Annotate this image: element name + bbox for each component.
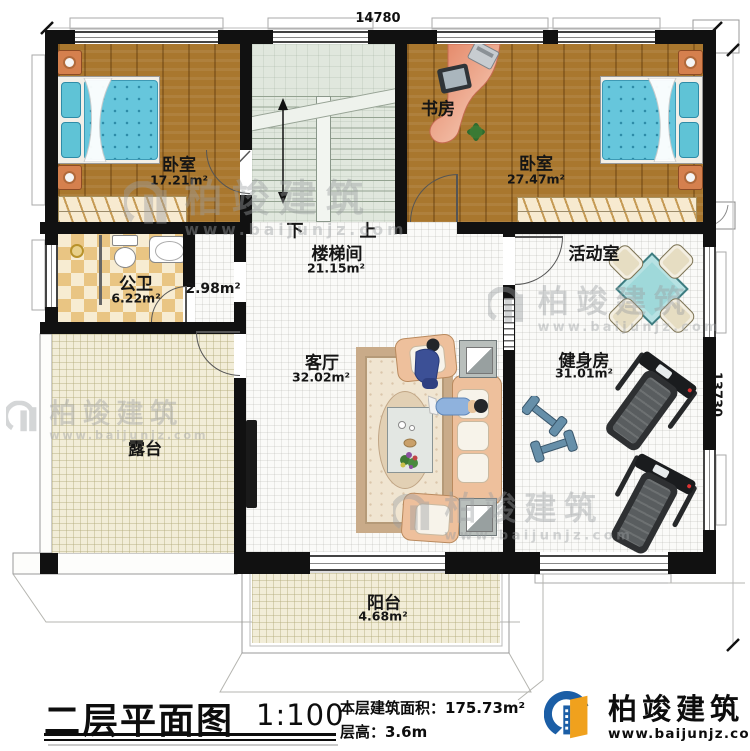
wall-segment — [395, 44, 407, 234]
wall-segment — [234, 552, 310, 574]
floor-height-text: 层高：3.6m — [340, 721, 427, 742]
armchair — [400, 492, 461, 544]
wall-segment — [445, 552, 540, 574]
window — [558, 31, 655, 43]
pillow — [679, 122, 699, 158]
nightstand — [57, 50, 82, 75]
nightstand — [57, 165, 82, 190]
lamp-icon — [684, 56, 697, 69]
room-area-gym: 31.01m² — [555, 366, 613, 381]
window — [540, 555, 668, 571]
wall-segment — [543, 30, 558, 44]
terrace-rail-left — [40, 334, 52, 553]
stairs — [252, 44, 395, 222]
person-seated — [404, 334, 448, 392]
bed-blanket — [82, 78, 116, 162]
sink-icon — [149, 236, 187, 263]
wall-segment — [240, 44, 252, 150]
window — [703, 450, 716, 530]
brand-name: 柏竣建筑 — [608, 694, 750, 726]
window — [273, 31, 368, 43]
wall-segment — [668, 552, 716, 574]
toilet-bowl — [114, 247, 136, 268]
wall-segment — [234, 378, 246, 574]
room-area-bathroom: 6.22m² — [111, 291, 160, 306]
brand-logo-icon — [544, 690, 600, 746]
floor-area-text: 本层建筑面积：175.73m² — [340, 697, 525, 718]
room-area-closet: 2.98m² — [185, 281, 240, 297]
room-area-bedroom1: 17.21m² — [150, 173, 208, 188]
lamp-icon — [63, 171, 76, 184]
tv-icon — [246, 420, 257, 508]
person-lying — [428, 386, 492, 426]
sliding-door — [310, 555, 445, 571]
stair-direction-arrows — [272, 94, 296, 206]
corner-column — [40, 553, 58, 574]
door-leaf — [456, 174, 458, 222]
room-area-balcony: 4.68m² — [358, 609, 407, 624]
brand-logo: 柏竣建筑 www.baijunjz.com — [544, 690, 750, 746]
wall-segment — [45, 30, 58, 245]
stair-down-label: 下 — [287, 217, 304, 242]
side-table-lamp — [459, 340, 497, 378]
sink-basin — [155, 241, 184, 261]
room-area-living: 32.02m² — [292, 370, 350, 385]
nightstand — [678, 50, 703, 75]
armchair-cushion — [414, 503, 451, 536]
room-label-terrace: 露台 — [128, 435, 162, 460]
lamp-shade-icon — [466, 505, 493, 532]
window — [703, 247, 716, 337]
bathroom-partition — [99, 235, 102, 305]
window — [45, 245, 58, 307]
dimension-right: 13730 — [709, 367, 724, 423]
plant-icon — [467, 123, 485, 141]
wall-segment — [40, 222, 252, 234]
title-underline-shadow — [48, 744, 338, 746]
wall-segment — [240, 195, 252, 222]
wall-vent — [504, 298, 514, 350]
room-label-study: 书房 — [421, 95, 455, 120]
floorplan-page: 卧室 17.21m² 书房 卧室 27.47m² 公卫 6.22m² 2.98m… — [0, 0, 750, 751]
title-underline — [44, 739, 336, 741]
drawing-scale: 1:100 — [256, 698, 345, 732]
pillow — [61, 122, 81, 158]
lamp-icon — [63, 56, 76, 69]
flowers-icon — [400, 452, 418, 469]
title-underline — [44, 733, 336, 736]
dumbbells-icon — [522, 396, 586, 466]
sofa-cushion — [457, 453, 489, 483]
wall-segment — [218, 30, 273, 44]
window — [437, 31, 543, 43]
toilet-icon — [112, 235, 138, 246]
side-table-lamp — [459, 498, 497, 536]
lamp-icon — [684, 171, 697, 184]
drawing-title: 二层平面图 — [44, 692, 234, 744]
pillow — [679, 82, 699, 118]
wall-segment — [503, 222, 515, 237]
bed-blanket — [644, 78, 678, 162]
wall-segment — [183, 234, 195, 287]
room-label-activity: 活动室 — [569, 240, 620, 265]
pillow — [61, 82, 81, 118]
room-area-stairwell: 21.15m² — [307, 261, 365, 276]
door-leaf — [515, 236, 563, 238]
dimension-top: 14780 — [338, 11, 418, 26]
closet-floor — [195, 234, 234, 322]
stair-up-label: 上 — [360, 217, 377, 242]
window — [75, 31, 218, 43]
wall-segment — [457, 222, 716, 234]
wall-segment — [234, 234, 246, 262]
brand-website: www.baijunjz.com — [608, 726, 750, 742]
stair-flight-up — [331, 96, 395, 222]
coffee-table — [387, 407, 433, 473]
wall-segment — [703, 30, 716, 247]
door-leaf — [196, 331, 240, 333]
nightstand — [678, 165, 703, 190]
lamp-shade-icon — [466, 347, 493, 374]
room-area-bedroom2: 27.47m² — [507, 172, 565, 187]
shower-head-icon — [70, 244, 84, 258]
wall-segment — [368, 30, 437, 44]
